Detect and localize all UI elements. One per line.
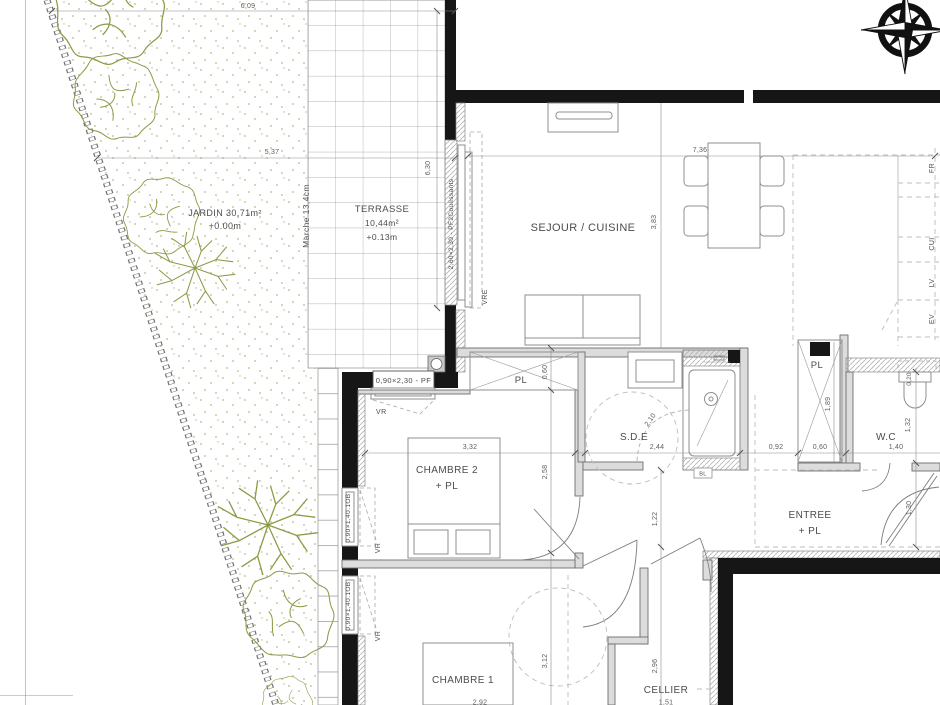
dim-312: 3,12 (542, 654, 549, 668)
room-label-jardin: JARDIN 30,71m² (188, 208, 262, 218)
terrace: TERRASSE 10,44m² +0.13m (308, 0, 445, 705)
dim-151: 1,51 (659, 700, 673, 705)
window-label-vr1: VR (376, 409, 387, 416)
window-label-ob1: 0,90×1,40.1OB (345, 493, 352, 542)
window-label-sliding: 2,60×2,30 - PF2Coulissants (448, 178, 455, 269)
closet-left: PL (470, 352, 578, 390)
dim-296: 2,96 (652, 659, 659, 673)
room-label-pl-right: PL (811, 360, 823, 371)
room-label-terrasse: TERRASSE (355, 204, 409, 215)
dim-736: 7,36 (693, 147, 707, 154)
dim-122: 1,22 (652, 512, 659, 526)
terrasse-level: +0.13m (367, 232, 398, 242)
room-label-chambre2: CHAMBRE 2 (416, 465, 478, 476)
dim-092: 0,92 (769, 444, 783, 451)
bed-chambre2 (408, 438, 500, 558)
room-label-sejour: SEJOUR / CUISINE (531, 222, 636, 234)
dim-132: 1,32 (905, 418, 912, 432)
room-label-chambre1: CHAMBRE 1 (432, 675, 494, 686)
terrasse-area: 10,44m² (365, 218, 399, 228)
jardin-level: +0.00m (209, 221, 242, 231)
entree-pl: + PL (799, 526, 821, 537)
window-label-vr3: VR (375, 631, 382, 642)
dim-332: 3,32 (463, 444, 477, 451)
dining-table (684, 143, 784, 248)
dim-189: 1,89 (825, 397, 832, 411)
dim-383: 3,83 (651, 215, 658, 229)
window-label-pf: 0,90×2,30 - PF (376, 376, 431, 385)
dim-130: 1,30 (906, 501, 913, 515)
label-bl: BL (699, 472, 707, 478)
dim-140: 1,40 (889, 444, 903, 451)
dim-630: 6,30 (425, 161, 432, 175)
window-label-vre: VRE (482, 289, 489, 305)
window-ob1: 0,90×1,40.1OB VR (342, 488, 382, 553)
dim-292: 2,92 (473, 700, 487, 705)
window-ob2: 0,90×1,40.1OB VR (342, 576, 382, 641)
room-label-entree: ENTREE (789, 510, 832, 521)
kitchen-appliances: FR CUI LV EV (793, 148, 940, 356)
window-label-vr2: VR (375, 543, 382, 554)
chambre2-pl: + PL (436, 481, 458, 492)
dim-210: 2,10 (644, 412, 658, 428)
room-label-wc: W.C (876, 432, 896, 443)
chambre-2: CHAMBRE 2 + PL (408, 438, 580, 560)
dim-060b: 0,60 (813, 444, 827, 451)
sofa (525, 295, 640, 345)
appliance-cui: CUI (929, 237, 936, 250)
appliance-lv: LV (929, 279, 936, 288)
room-label-sde: S.D.E (620, 432, 648, 443)
room-label-cellier: CELLIER (644, 685, 689, 696)
compass-icon (861, 0, 940, 74)
vanity (628, 352, 682, 388)
dim-060a: 0,60 (542, 365, 549, 379)
page-border (0, 0, 73, 705)
turning-circle-hall (509, 588, 607, 686)
door-arc-wc (862, 463, 890, 491)
floor-plan-canvas: JARDIN 30,71m² +0.00m Marche 13,4cm TERR… (0, 0, 940, 705)
garden: JARDIN 30,71m² +0.00m Marche 13,4cm (47, 0, 346, 705)
floor-plan: JARDIN 30,71m² +0.00m Marche 13,4cm TERR… (0, 0, 940, 705)
shower (683, 350, 740, 470)
dim-258: 2,58 (542, 465, 549, 479)
dim-537: 5,37 (265, 149, 279, 156)
appliance-fr: FR (929, 163, 936, 173)
radiator (548, 103, 618, 132)
dim-609: 6,09 (241, 3, 255, 10)
dim-244: 2,44 (650, 444, 664, 451)
toilet (899, 372, 931, 408)
appliance-ev: EV (929, 314, 936, 324)
window-label-ob2: 0,90×1,40.1OB (345, 581, 352, 630)
room-label-pl-left: PL (515, 375, 527, 386)
interior-walls (342, 335, 940, 705)
window-sliding-bay: 2,60×2,30 - PF2Coulissants VRE (445, 132, 489, 308)
wc: W.C (862, 361, 936, 491)
dim-020: 0,20 (906, 372, 913, 386)
